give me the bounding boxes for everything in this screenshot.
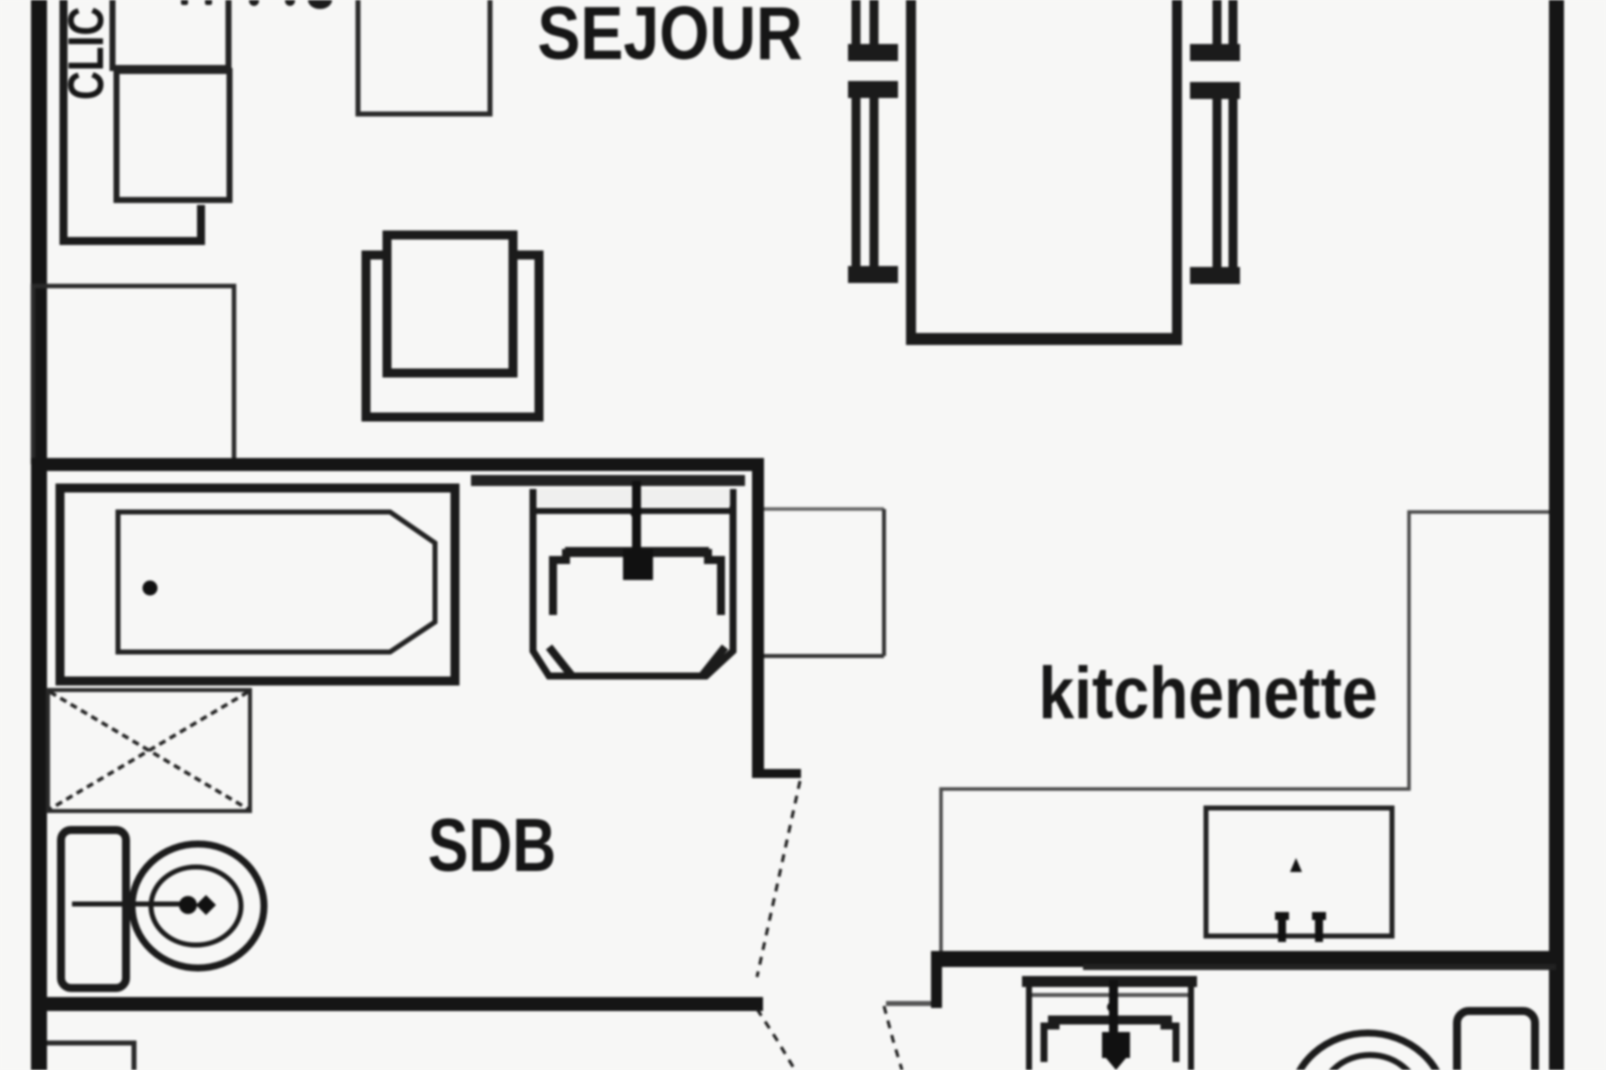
svg-text:SEJOUR: SEJOUR: [537, 0, 802, 75]
svg-text:CLIC CLAC: CLIC CLAC: [58, 0, 114, 100]
svg-text:SDB: SDB: [428, 804, 556, 888]
svg-text:kitchenette: kitchenette: [1038, 652, 1377, 734]
